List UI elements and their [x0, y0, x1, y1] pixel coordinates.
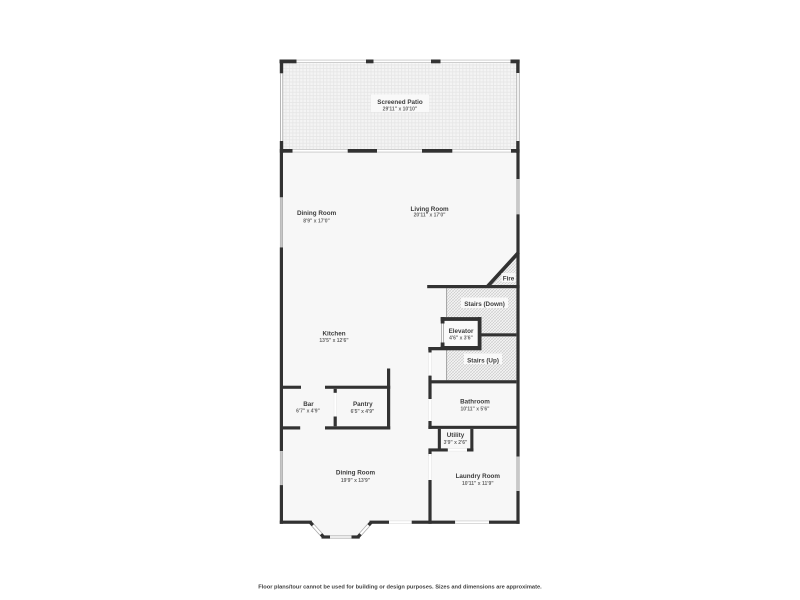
svg-text:Fire: Fire — [503, 275, 515, 282]
svg-text:6'5" x 4'9": 6'5" x 4'9" — [351, 409, 375, 415]
svg-text:Dining Room: Dining Room — [297, 210, 337, 217]
svg-text:Elevator: Elevator — [449, 328, 474, 335]
svg-text:Utility: Utility — [447, 432, 465, 439]
svg-text:20'11" x 17'0": 20'11" x 17'0" — [414, 212, 446, 218]
svg-text:8'9" x 17'0": 8'9" x 17'0" — [303, 218, 330, 224]
svg-text:4'6" x 3'6": 4'6" x 3'6" — [449, 336, 473, 342]
svg-text:Pantry: Pantry — [353, 401, 373, 408]
svg-text:Stairs (Up): Stairs (Up) — [467, 357, 499, 364]
svg-text:19'9" x 13'9": 19'9" x 13'9" — [341, 478, 371, 484]
svg-text:10'11" x 11'9": 10'11" x 11'9" — [462, 481, 494, 487]
svg-text:13'5" x 12'6": 13'5" x 12'6" — [319, 338, 349, 344]
svg-text:29'11" x 10'10": 29'11" x 10'10" — [383, 106, 418, 112]
svg-text:6'7" x 4'9": 6'7" x 4'9" — [296, 409, 320, 415]
svg-text:Kitchen: Kitchen — [322, 330, 345, 337]
svg-text:Stairs (Down): Stairs (Down) — [464, 301, 505, 308]
svg-text:Floor plans/tour cannot be use: Floor plans/tour cannot be used for buil… — [258, 585, 542, 591]
svg-text:Laundry Room: Laundry Room — [456, 473, 501, 480]
svg-text:Dining Room: Dining Room — [336, 469, 376, 476]
svg-text:Bar: Bar — [303, 401, 314, 408]
svg-text:10'11" x 5'6": 10'11" x 5'6" — [460, 406, 490, 412]
svg-text:Screened Patio: Screened Patio — [377, 99, 423, 106]
svg-text:Bathroom: Bathroom — [460, 399, 490, 406]
svg-text:3'9" x 2'6": 3'9" x 2'6" — [444, 440, 468, 446]
